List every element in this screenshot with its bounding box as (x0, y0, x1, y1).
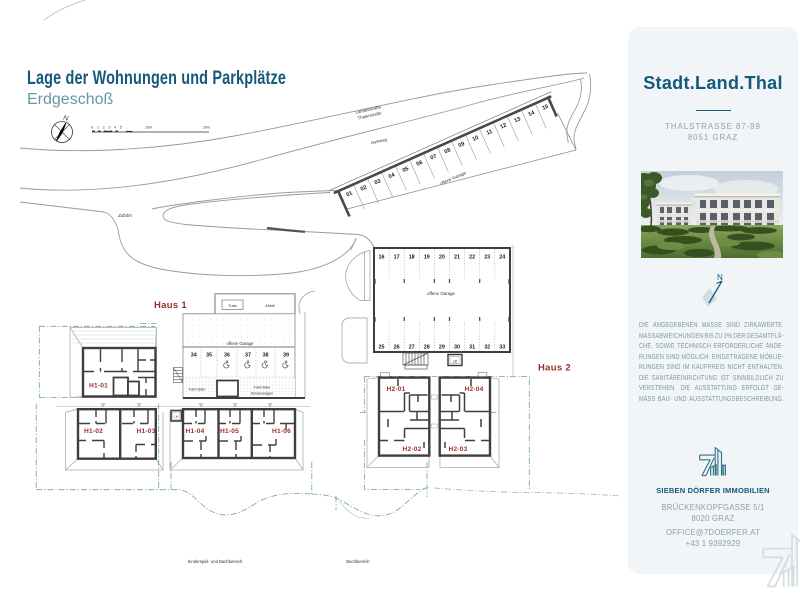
svg-text:H1-06: H1-06 (272, 428, 291, 435)
svg-text:14: 14 (528, 110, 537, 118)
svg-text:Fahrräder: Fahrräder (254, 386, 271, 390)
svg-text:4: 4 (114, 126, 116, 130)
svg-text:19: 19 (424, 255, 430, 261)
svg-text:1: 1 (97, 126, 99, 130)
svg-text:H1-01: H1-01 (89, 383, 108, 390)
svg-text:39: 39 (283, 353, 289, 359)
svg-text:08: 08 (444, 147, 452, 155)
svg-text:18: 18 (409, 255, 415, 261)
svg-text:21: 21 (454, 255, 460, 261)
svg-text:13: 13 (514, 116, 522, 124)
svg-text:24: 24 (499, 255, 505, 261)
svg-text:28: 28 (424, 345, 430, 351)
svg-text:H2-02: H2-02 (403, 446, 422, 453)
svg-text:H1-05: H1-05 (220, 428, 239, 435)
svg-text:29: 29 (439, 345, 445, 351)
svg-text:31: 31 (469, 345, 475, 351)
svg-text:25: 25 (379, 345, 385, 351)
svg-text:12: 12 (500, 122, 508, 130)
svg-text:26: 26 (394, 345, 400, 351)
svg-text:36: 36 (224, 353, 230, 359)
svg-text:Gehweg: Gehweg (371, 137, 388, 145)
svg-text:09: 09 (458, 141, 466, 149)
svg-text:offene Garage: offene Garage (227, 341, 254, 346)
svg-text:07: 07 (430, 154, 438, 162)
svg-text:16: 16 (379, 255, 385, 261)
svg-text:5: 5 (120, 126, 122, 130)
svg-text:Haus 1: Haus 1 (154, 300, 187, 311)
svg-text:34: 34 (191, 353, 197, 359)
svg-text:06: 06 (416, 160, 424, 168)
svg-text:N: N (717, 273, 723, 282)
svg-text:Haus 2: Haus 2 (538, 363, 571, 374)
svg-text:Kinderwagen: Kinderwagen (251, 392, 273, 396)
svg-text:38: 38 (263, 353, 269, 359)
svg-text:33: 33 (499, 345, 505, 351)
svg-text:0: 0 (91, 126, 93, 130)
svg-text:Bachbereich: Bachbereich (346, 559, 370, 564)
svg-text:Lift: Lift (174, 415, 178, 419)
svg-text:32: 32 (484, 345, 490, 351)
svg-text:offene Garage: offene Garage (439, 170, 467, 186)
svg-text:H2-03: H2-03 (449, 446, 468, 453)
svg-text:17: 17 (394, 255, 400, 261)
svg-text:02: 02 (360, 185, 368, 193)
svg-text:27: 27 (409, 345, 415, 351)
svg-text:H2-04: H2-04 (465, 386, 484, 393)
svg-text:Kinderspiel- und Bachbereich: Kinderspiel- und Bachbereich (188, 559, 243, 564)
svg-text:04: 04 (388, 172, 397, 180)
svg-text:H2-01: H2-01 (387, 386, 406, 393)
svg-text:H1-04: H1-04 (186, 428, 205, 435)
svg-text:05: 05 (402, 166, 410, 174)
svg-text:Zufahrt: Zufahrt (118, 213, 132, 218)
svg-text:N: N (62, 115, 70, 123)
svg-text:11: 11 (486, 129, 494, 137)
svg-text:offene Garage: offene Garage (427, 291, 456, 296)
svg-text:Abfall: Abfall (265, 304, 275, 308)
svg-text:10m: 10m (145, 126, 152, 130)
svg-text:37: 37 (245, 353, 251, 359)
svg-text:Trafo: Trafo (228, 304, 237, 308)
svg-text:20m: 20m (203, 126, 210, 130)
svg-text:Lift: Lift (453, 360, 458, 364)
svg-text:Fahrräder: Fahrräder (189, 388, 206, 392)
svg-text:03: 03 (374, 178, 382, 186)
svg-text:3: 3 (108, 126, 110, 130)
svg-text:22: 22 (469, 255, 475, 261)
svg-text:30: 30 (454, 345, 460, 351)
svg-text:H1-03: H1-03 (137, 428, 156, 435)
svg-text:20: 20 (439, 255, 445, 261)
svg-text:01: 01 (346, 190, 354, 198)
svg-text:15: 15 (541, 104, 549, 112)
svg-text:35: 35 (206, 353, 212, 359)
svg-text:23: 23 (484, 255, 490, 261)
svg-text:2: 2 (103, 126, 105, 130)
svg-text:10: 10 (472, 135, 480, 143)
svg-text:H1-02: H1-02 (84, 428, 103, 435)
